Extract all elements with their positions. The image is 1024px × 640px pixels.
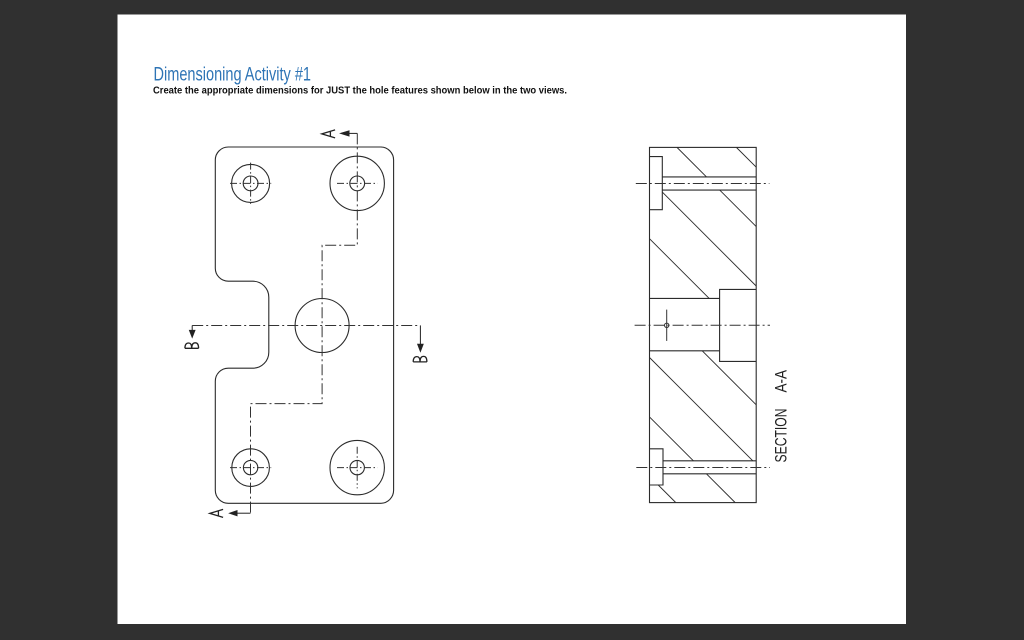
svg-text:A-A: A-A [771,369,790,392]
svg-text:SECTION: SECTION [771,409,790,463]
svg-text:Dimensioning Activity #1: Dimensioning Activity #1 [154,64,312,86]
svg-text:Create the appropriate dimensi: Create the appropriate dimensions for JU… [153,86,567,97]
